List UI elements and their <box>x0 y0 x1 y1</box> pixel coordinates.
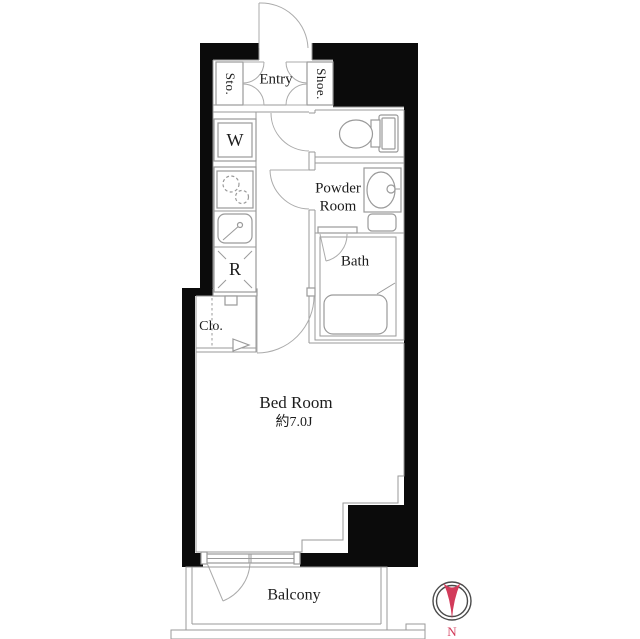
closet: Clo. <box>196 296 256 352</box>
bathtub-icon <box>324 295 387 334</box>
compass-needle <box>444 583 461 619</box>
entry-door-arc <box>259 3 308 48</box>
bath-label: Bath <box>341 253 370 269</box>
toilet-icon <box>340 115 399 152</box>
kitchen-sink-icon <box>218 214 252 243</box>
bedroom-door-arc <box>257 296 314 353</box>
floor-plan-page: Entry Sto. Shoe. W R <box>0 0 640 639</box>
powder-room-label-line1: Powder <box>315 180 361 196</box>
refrigerator-label: R <box>229 259 241 279</box>
powder-door-arc <box>270 170 309 209</box>
floor-plan: Entry Sto. Shoe. W R <box>0 0 640 639</box>
bath-room: Bath <box>315 227 404 340</box>
closet-door-direction-arrow <box>233 339 249 351</box>
bedroom-size-label: 約7.0J <box>276 414 313 430</box>
shoe-label: Shoe. <box>314 68 329 100</box>
closet-label: Clo. <box>199 319 223 334</box>
compass-north-label: N <box>447 624 457 639</box>
storage-label: Sto. <box>223 73 238 96</box>
kitchen-column: W R <box>214 119 256 292</box>
lower-platform-step <box>406 624 425 630</box>
washer-label: W <box>227 130 244 150</box>
compass-icon: N <box>433 582 471 639</box>
balcony-label: Balcony <box>267 587 320 604</box>
powder-room-label-line2: Room <box>320 198 357 214</box>
bath-threshold <box>318 227 357 233</box>
bedroom-label: Bed Room <box>259 393 332 412</box>
bedroom: Bed Room 約7.0J <box>257 296 333 430</box>
lower-platform <box>171 630 425 639</box>
toilet-room <box>271 113 398 152</box>
washer-pan-icon <box>368 214 396 231</box>
toilet-door-arc <box>271 113 309 151</box>
stove-icon <box>217 171 253 208</box>
balcony-door-arc <box>207 563 250 601</box>
powder-room: Powder Room <box>270 168 401 231</box>
entry-label: Entry <box>259 71 293 87</box>
washbasin-icon <box>364 168 401 212</box>
balcony: Balcony <box>171 567 425 639</box>
